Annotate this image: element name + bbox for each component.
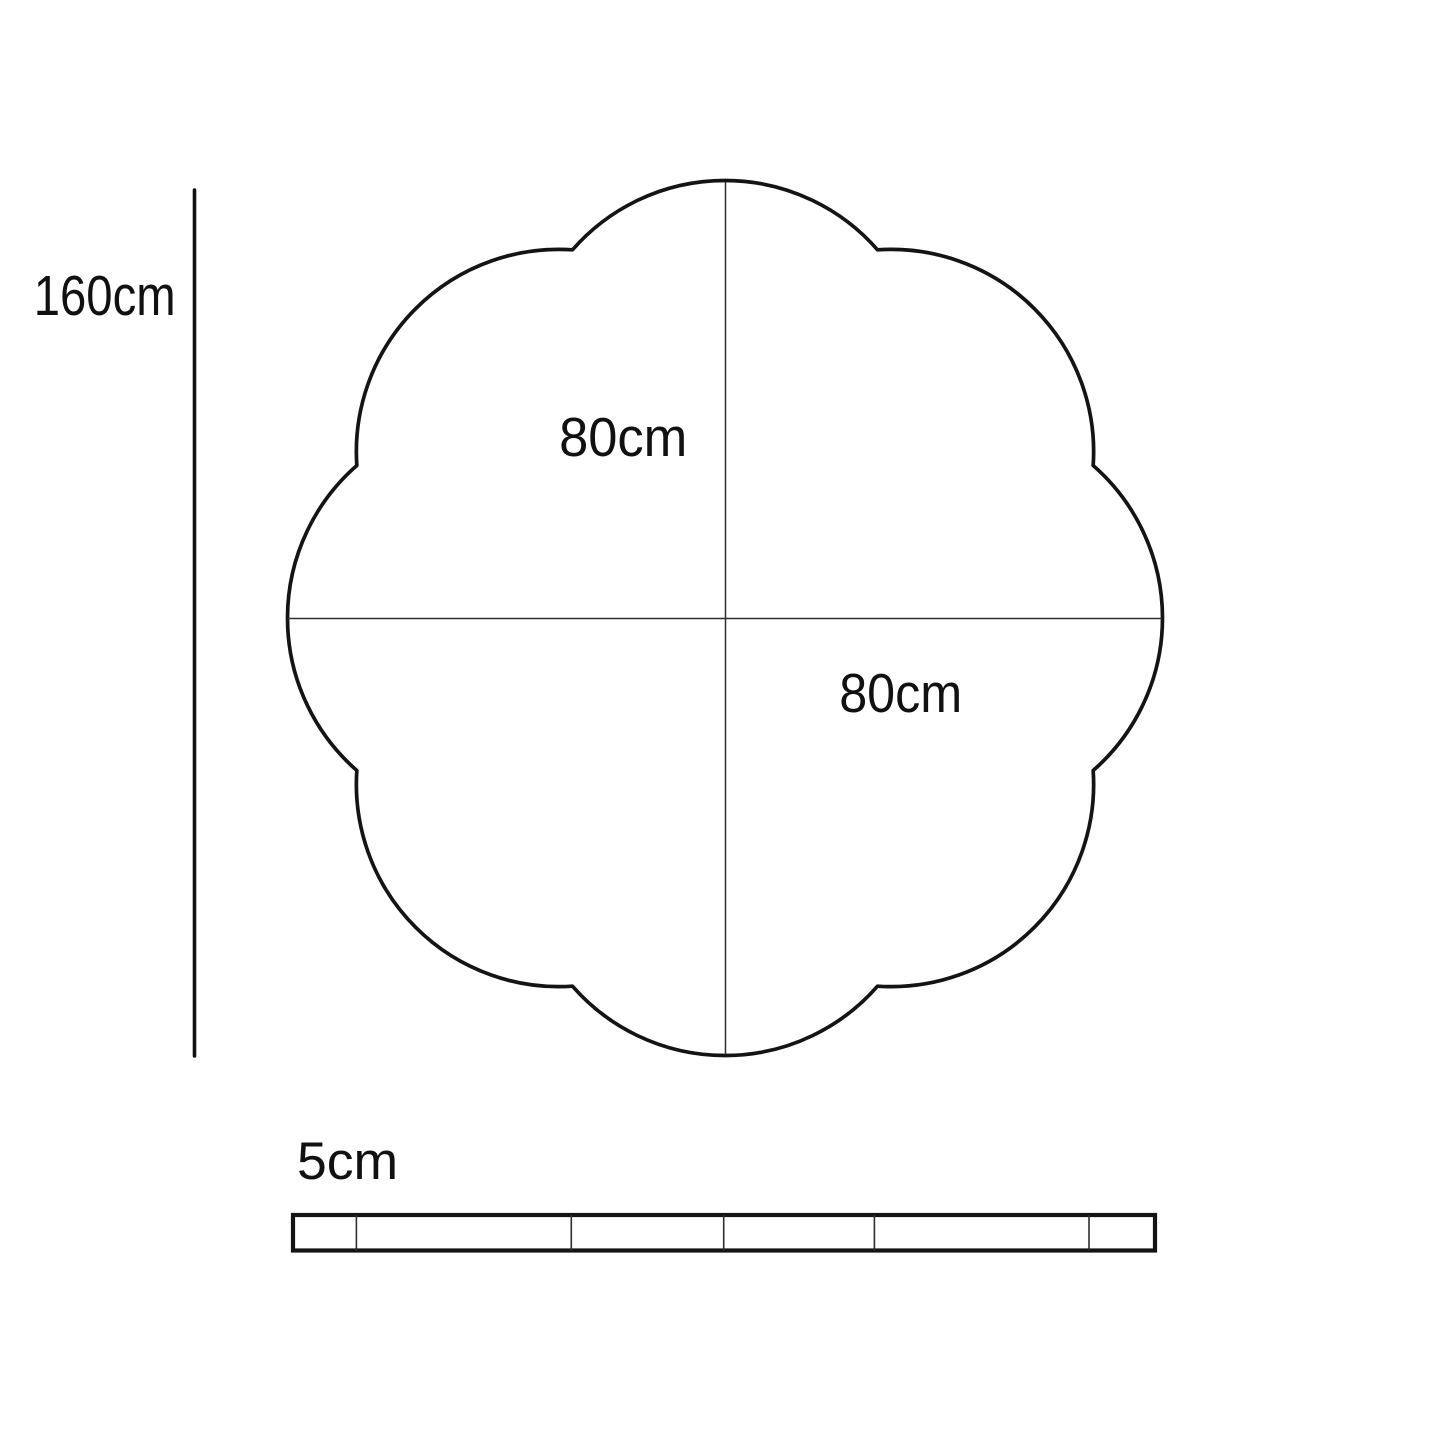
svg-text:80cm: 80cm <box>559 407 687 468</box>
svg-text:80cm: 80cm <box>839 663 962 725</box>
svg-text:160cm: 160cm <box>34 265 176 328</box>
svg-text:5cm: 5cm <box>297 1132 398 1191</box>
